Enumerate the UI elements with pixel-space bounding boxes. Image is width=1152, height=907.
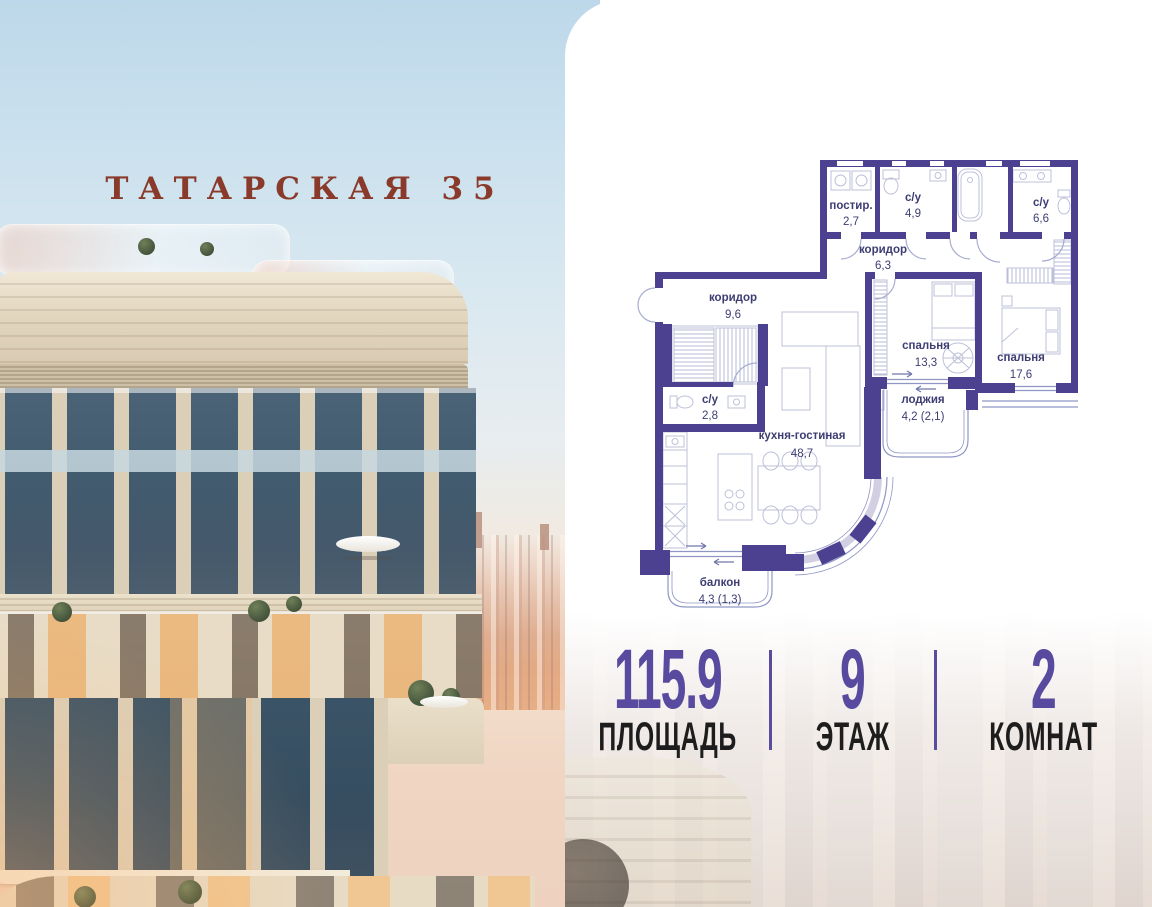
room-label-wc2-name: с/у: [1033, 197, 1050, 209]
stat-area: 115.9 ПЛОЩАДЬ: [565, 646, 770, 752]
stat-floor-value: 9: [840, 646, 865, 712]
stat-floor-label: ЭТАЖ: [815, 720, 889, 754]
louver-band: [0, 364, 468, 388]
roof-plant: [200, 242, 214, 256]
room-label-loggia-area: 4,2 (2,1): [902, 411, 945, 423]
room-label-wc3-name: с/у: [702, 394, 719, 406]
details-panel: постир. 2,7 с/у 4,9 с/у 6,6 коридор 6,3 …: [565, 0, 1152, 907]
stat-rooms-label: КОМНАТ: [989, 720, 1098, 754]
stat-area-label: ПЛОЩАДЬ: [598, 720, 736, 754]
stat-floor: 9 ЭТАЖ: [770, 646, 935, 752]
terrace-umbrella: [420, 696, 468, 708]
room-label-bedroom1-area: 13,3: [915, 357, 937, 369]
apartment-card[interactable]: ТАТАРСКАЯ 35: [0, 0, 1152, 907]
room-label-loggia-name: лоджия: [901, 394, 944, 406]
window-band-upper: [0, 388, 476, 594]
room-label-bedroom2-area: 17,6: [1010, 369, 1032, 381]
room-label-balcony-name: балкон: [700, 577, 740, 589]
room-label-corridor2-name: коридор: [709, 292, 757, 304]
room-label-wc1-area: 4,9: [905, 208, 921, 220]
terrace-umbrella: [336, 536, 400, 552]
project-title: ТАТАРСКАЯ 35: [55, 171, 555, 207]
room-label-corridor2-area: 9,6: [725, 309, 741, 321]
room-label-wc3-area: 2,8: [702, 410, 718, 422]
room-label-bedroom2-name: спальня: [997, 352, 1045, 364]
stat-area-value: 115.9: [614, 646, 722, 712]
room-label-laundry-area: 2,7: [843, 216, 859, 228]
building-photo: ТАТАРСКАЯ 35: [0, 0, 600, 907]
room-label-wc2-area: 6,6: [1033, 213, 1049, 225]
stat-rooms-value: 2: [1031, 646, 1056, 712]
distant-tower: [540, 524, 549, 550]
room-label-kitchen-name: кухня-гостиная: [759, 430, 846, 442]
stat-divider: [934, 650, 937, 750]
sunset-glow: [0, 567, 400, 907]
room-label-kitchen-area: 48,7: [791, 448, 813, 460]
stat-rooms: 2 КОМНАТ: [935, 646, 1152, 752]
stat-divider: [769, 650, 772, 750]
room-label-laundry-name: постир.: [829, 200, 872, 212]
stone-cornice: [0, 272, 468, 364]
room-label-wc1-name: с/у: [905, 192, 922, 204]
room-label-bedroom1-name: спальня: [902, 340, 950, 352]
stats-row: 115.9 ПЛОЩАДЬ 9 ЭТАЖ 2 КОМНАТ: [565, 646, 1152, 752]
room-label-corridor1-name: коридор: [859, 244, 907, 256]
room-label-balcony-area: 4,3 (1,3): [699, 594, 742, 606]
room-label-corridor1-area: 6,3: [875, 260, 891, 272]
terrace-floor: [388, 698, 484, 764]
floor-plan: постир. 2,7 с/у 4,9 с/у 6,6 коридор 6,3 …: [630, 160, 1095, 625]
roof-plant: [138, 238, 155, 255]
